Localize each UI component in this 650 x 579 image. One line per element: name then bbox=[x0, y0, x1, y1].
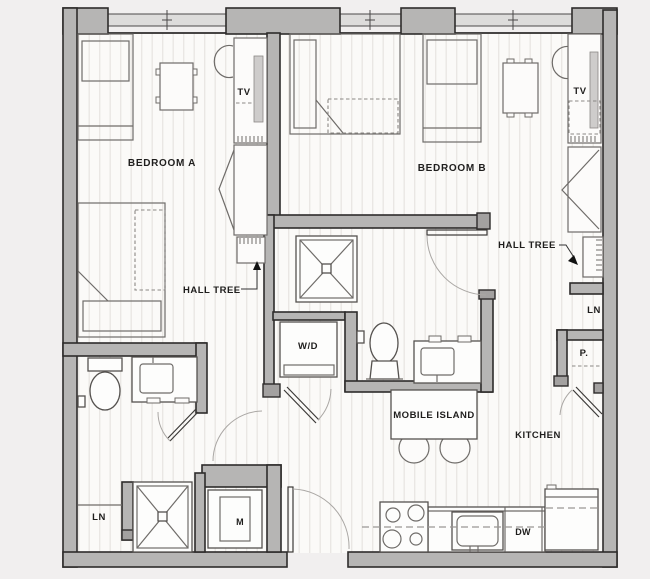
refrigerator-handle bbox=[547, 485, 556, 489]
toilet-flush-plate bbox=[78, 396, 85, 407]
bedroom-b-label: BEDROOM B bbox=[418, 163, 487, 174]
wall-top-block bbox=[401, 8, 455, 34]
mobile-island-label: MOBILE ISLAND bbox=[393, 410, 474, 421]
vanity-tick bbox=[175, 398, 189, 403]
tv-screen bbox=[590, 52, 598, 128]
floor-plan: TV BEDROOM A HALL TREE bbox=[0, 0, 650, 579]
mech-label: M bbox=[236, 517, 244, 527]
wall-kitchen-west bbox=[481, 295, 493, 392]
wall-cap bbox=[122, 530, 133, 540]
hall-tree-unit bbox=[237, 237, 265, 263]
wall-cap bbox=[594, 383, 603, 393]
dw-label: DW bbox=[515, 527, 531, 537]
wall-bedroom-b-south bbox=[267, 215, 488, 228]
refrigerator bbox=[545, 489, 598, 550]
shower-drain bbox=[158, 512, 167, 521]
wall-cap bbox=[477, 213, 490, 229]
ln-left-label: LN bbox=[92, 512, 106, 523]
wall-pantry-west bbox=[557, 330, 567, 380]
vanity-tick bbox=[147, 398, 160, 403]
tv-screen bbox=[254, 56, 263, 122]
wall-right bbox=[603, 10, 617, 567]
vanity bbox=[414, 341, 481, 383]
kitchen-label: KITCHEN bbox=[515, 430, 561, 441]
wardrobe bbox=[234, 145, 267, 235]
hall-tree-hatch bbox=[596, 240, 602, 270]
tv-label-a: TV bbox=[237, 87, 250, 98]
wall-m-east bbox=[267, 465, 281, 552]
wall-bottom-left bbox=[63, 552, 287, 567]
wall-bedroom-a-south bbox=[63, 343, 206, 356]
wall-top-mid-block bbox=[226, 8, 340, 34]
wall-bedroom-divider bbox=[267, 33, 280, 216]
cabinet-hatch bbox=[571, 136, 595, 142]
toilet-tank bbox=[88, 358, 122, 371]
toilet-base bbox=[370, 361, 399, 379]
wardrobe bbox=[568, 147, 601, 232]
hall-tree-label-a: HALL TREE bbox=[183, 285, 241, 296]
desk bbox=[160, 63, 193, 110]
wall-ln-right-north bbox=[570, 283, 603, 294]
wall-m-west bbox=[195, 473, 205, 552]
tv-label-b: TV bbox=[573, 86, 586, 97]
floor-plan-canvas: TV BEDROOM A HALL TREE bbox=[0, 0, 650, 579]
mechanical-closet: M bbox=[208, 490, 262, 548]
toilet-bowl bbox=[370, 323, 398, 363]
wall-bottom-right bbox=[348, 552, 617, 567]
wall-wd-north bbox=[273, 312, 345, 320]
bedroom-a-label: BEDROOM A bbox=[128, 158, 196, 169]
pantry-label: P. bbox=[580, 348, 589, 359]
vanity-tick bbox=[429, 336, 441, 342]
desk bbox=[503, 63, 538, 113]
hall-tree-unit bbox=[583, 237, 603, 277]
wd-label: W/D bbox=[298, 341, 318, 352]
cabinet-hatch bbox=[238, 136, 262, 142]
vanity-tick bbox=[458, 336, 471, 342]
hall-tree-label-b: HALL TREE bbox=[498, 240, 556, 251]
wall-cap bbox=[263, 384, 280, 397]
toilet-flush-plate bbox=[357, 331, 364, 343]
shower-drain bbox=[322, 264, 331, 273]
toilet-bowl bbox=[90, 372, 120, 410]
ln-right-label: LN bbox=[587, 305, 601, 316]
wall-left bbox=[63, 8, 77, 567]
mechanical-unit bbox=[208, 490, 262, 548]
wall-wd-east bbox=[345, 312, 357, 391]
wall-cap bbox=[554, 376, 568, 386]
